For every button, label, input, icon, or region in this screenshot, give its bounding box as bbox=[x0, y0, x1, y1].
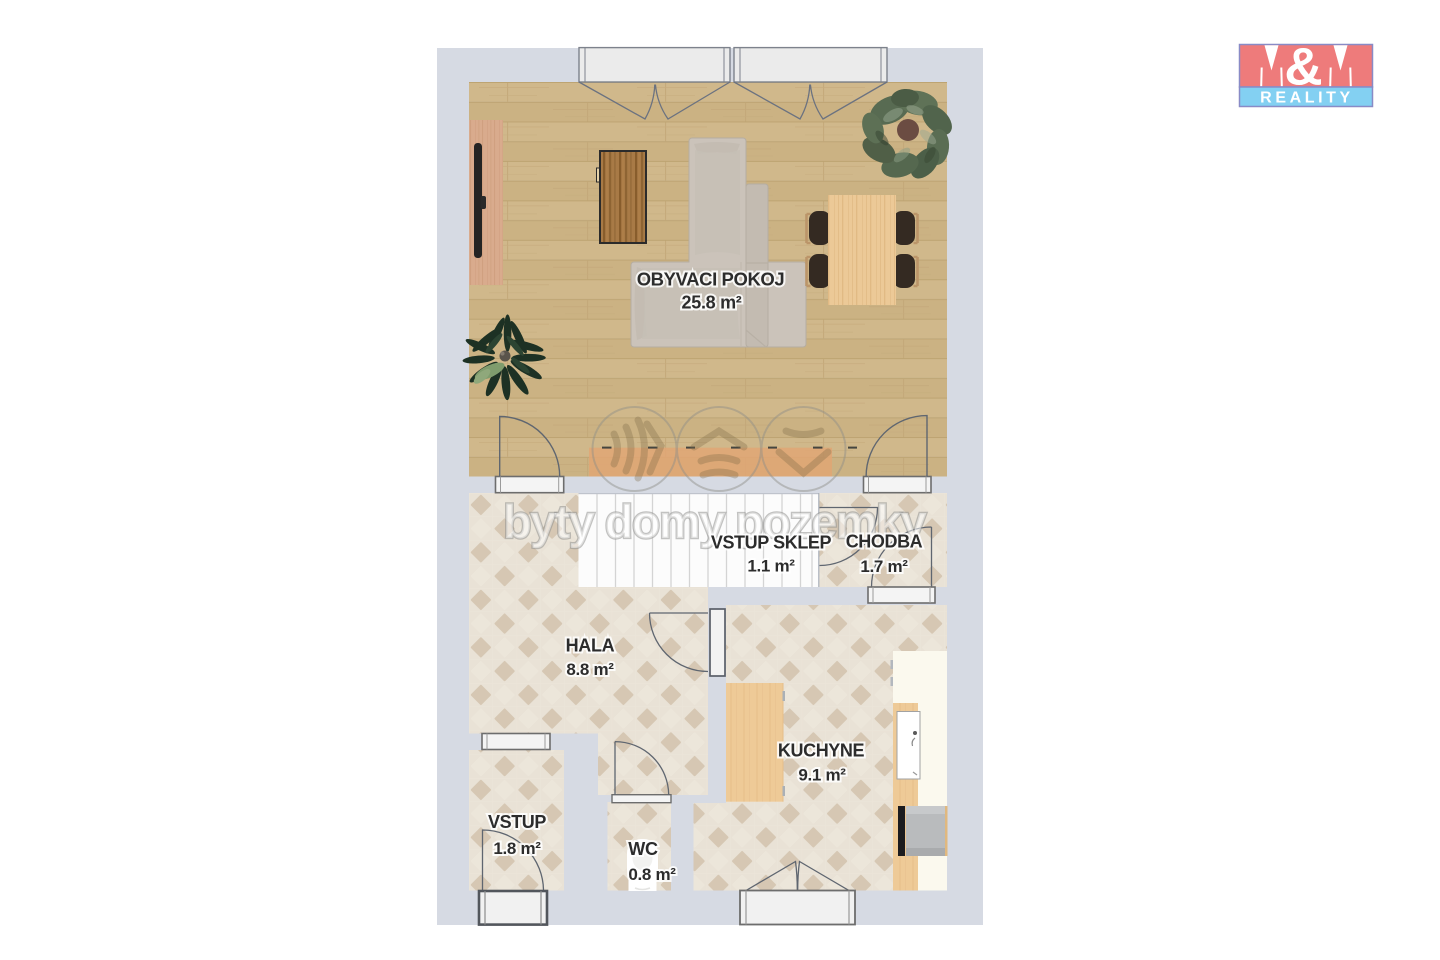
svg-text:9.1 m²: 9.1 m² bbox=[798, 766, 846, 785]
svg-text:WC: WC bbox=[628, 839, 658, 859]
svg-text:VSTUP SKLEP: VSTUP SKLEP bbox=[711, 533, 832, 553]
svg-text:1.7 m²: 1.7 m² bbox=[860, 557, 908, 576]
svg-text:KUCHYNE: KUCHYNE bbox=[778, 741, 865, 761]
svg-text:CHODBA: CHODBA bbox=[846, 532, 923, 552]
svg-text:REALITY: REALITY bbox=[1260, 89, 1354, 106]
svg-text:8.8 m²: 8.8 m² bbox=[566, 660, 614, 679]
svg-text:1.8 m²: 1.8 m² bbox=[493, 839, 541, 858]
svg-text:VSTUP: VSTUP bbox=[488, 812, 546, 832]
svg-text:25.8 m²: 25.8 m² bbox=[682, 293, 742, 313]
svg-text:OBYVACI POKOJ: OBYVACI POKOJ bbox=[637, 269, 785, 290]
svg-text:1.1 m²: 1.1 m² bbox=[747, 557, 795, 576]
svg-text:HALA: HALA bbox=[566, 636, 615, 656]
svg-text:0.8 m²: 0.8 m² bbox=[628, 865, 676, 884]
